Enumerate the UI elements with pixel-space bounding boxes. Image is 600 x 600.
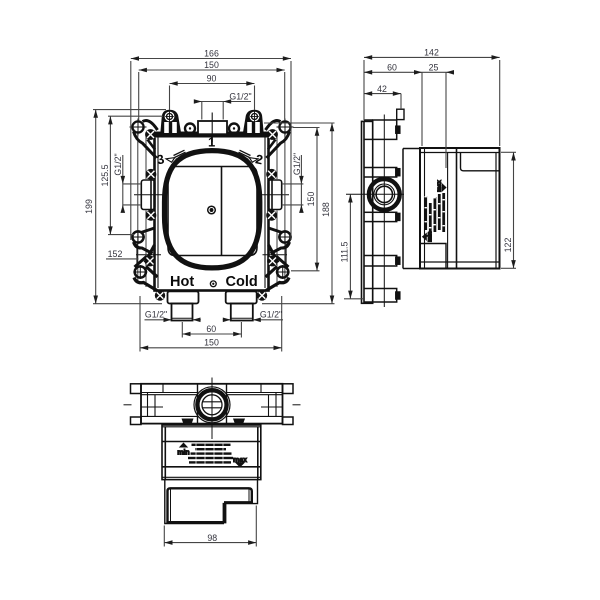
svg-text:150: 150: [204, 60, 219, 70]
svg-text:G1/2": G1/2": [229, 91, 251, 101]
svg-text:min: min: [428, 231, 434, 242]
svg-text:42: 42: [377, 84, 387, 94]
svg-text:188: 188: [321, 202, 331, 217]
svg-text:125.5: 125.5: [100, 164, 110, 186]
svg-text:G1/2": G1/2": [292, 153, 302, 175]
svg-text:60: 60: [206, 324, 216, 334]
svg-text:199: 199: [84, 199, 94, 214]
svg-text:111.5: 111.5: [340, 242, 350, 263]
svg-text:Cold: Cold: [226, 274, 258, 290]
svg-text:150: 150: [306, 192, 316, 207]
svg-text:G1/2": G1/2": [260, 310, 282, 320]
svg-text:152: 152: [108, 249, 123, 259]
svg-text:150: 150: [204, 338, 219, 348]
svg-text:122: 122: [503, 238, 513, 253]
svg-text:G1/2": G1/2": [145, 310, 167, 320]
svg-text:142: 142: [424, 48, 439, 58]
svg-text:1: 1: [208, 135, 215, 150]
svg-text:25: 25: [429, 62, 439, 72]
svg-text:min: min: [177, 450, 189, 457]
svg-text:90: 90: [207, 73, 217, 83]
svg-text:98: 98: [207, 533, 217, 543]
svg-text:G1/2": G1/2": [113, 153, 123, 175]
svg-text:60: 60: [387, 62, 397, 72]
svg-text:166: 166: [204, 48, 219, 58]
svg-text:Hot: Hot: [170, 274, 194, 290]
